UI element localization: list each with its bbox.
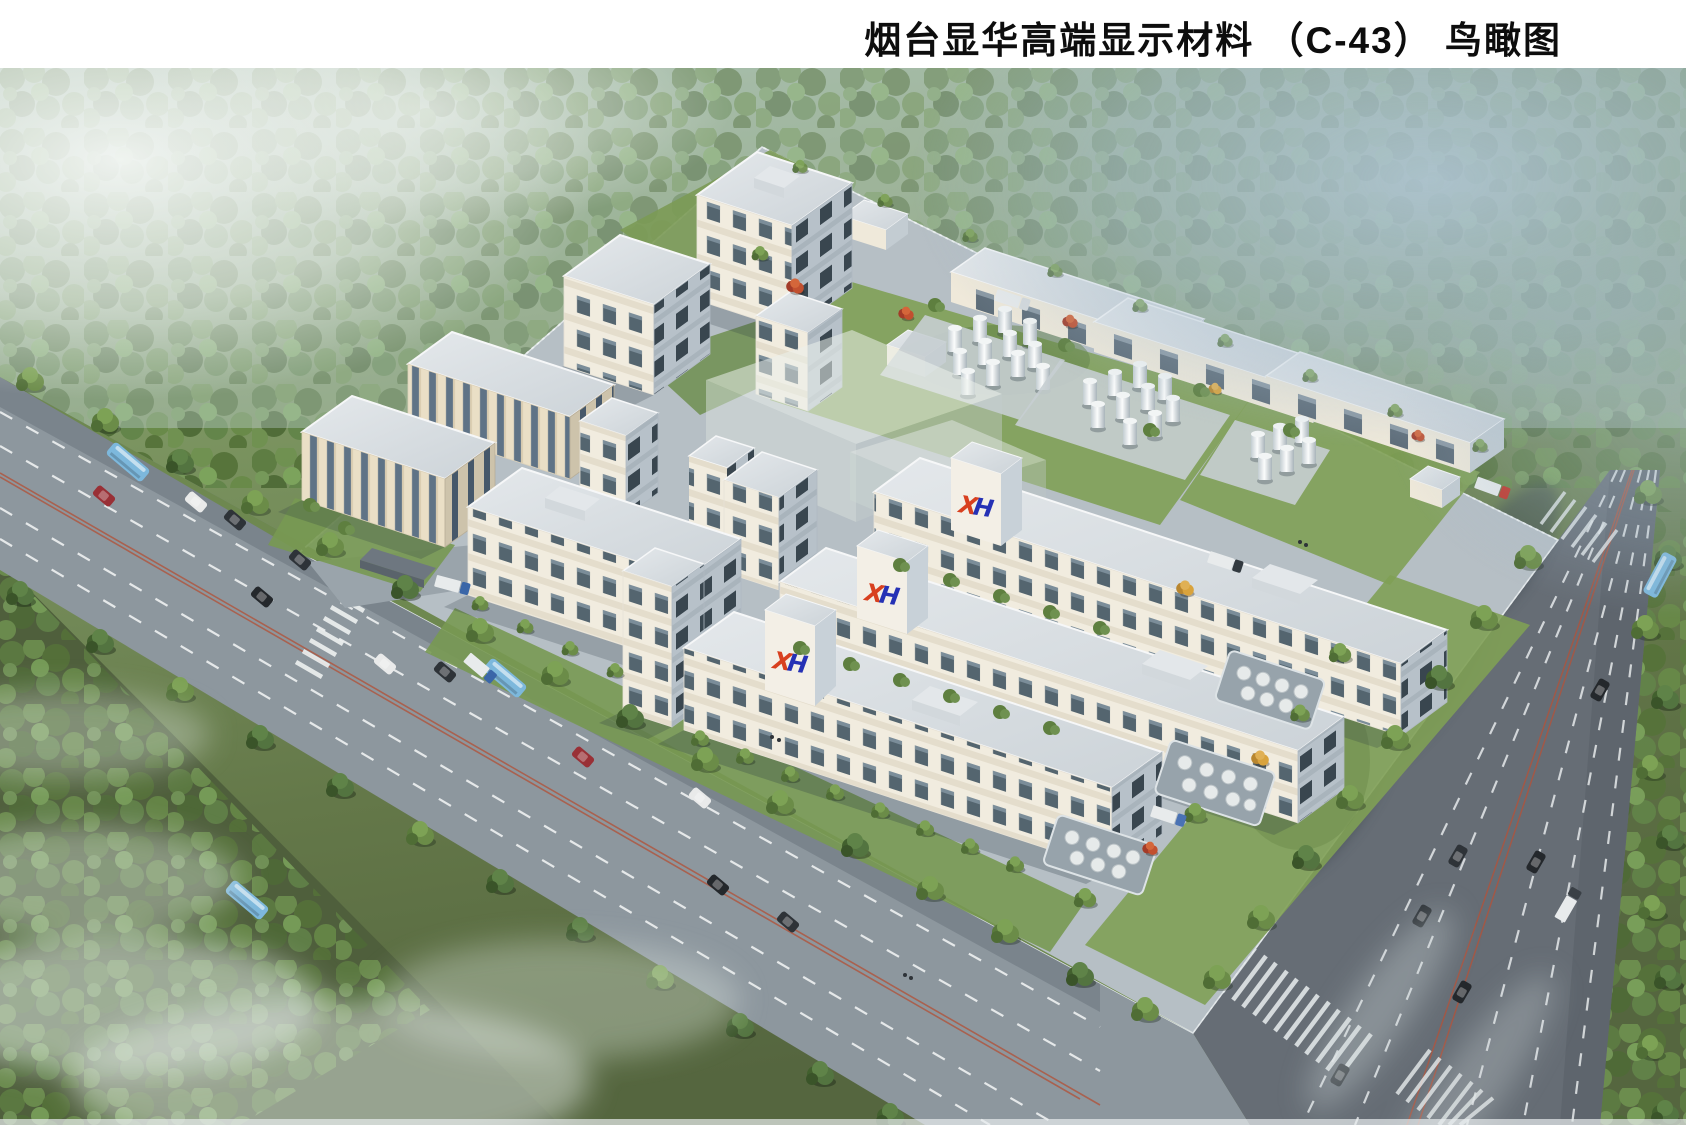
title-bar: 烟台显华高端显示材料 （C-43） 鸟瞰图 [0,0,1686,68]
birdseye-render-page: 烟台显华高端显示材料 （C-43） 鸟瞰图 [0,0,1686,1125]
birdseye-rendering: XH [0,68,1686,1125]
xh-logo: XH [955,490,996,523]
xh-logo: XH [861,578,902,611]
logo-tower: XH [951,442,1022,546]
image-bottom-edge [0,1119,1686,1125]
logo-tower: XH [857,530,928,634]
page-title: 烟台显华高端显示材料 （C-43） 鸟瞰图 [864,10,1562,64]
